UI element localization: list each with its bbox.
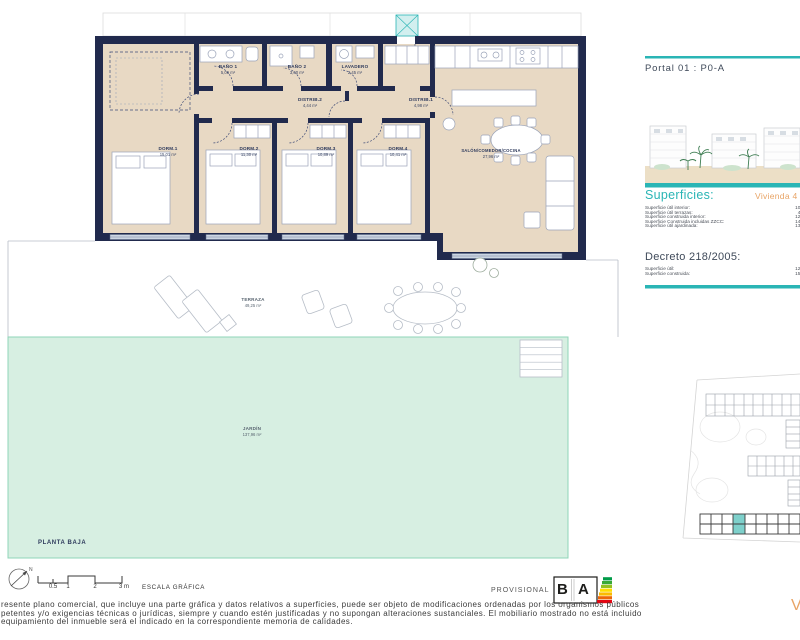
room-label-bano2: BAÑO 2 3,60 m² [288, 64, 307, 75]
vivienda-label: Vivienda 4 [755, 191, 798, 201]
disclaimer-line: equipamiento del inmueble será el indica… [1, 617, 353, 626]
room-label-dorm3: DORM.3 10,89 m² [316, 146, 335, 157]
north-compass-icon [9, 569, 29, 589]
decreto-row: Superficie construida: 156 [645, 272, 800, 277]
floor-level-label: PLANTA BAJA [38, 540, 86, 546]
shaft-icon [396, 15, 418, 36]
upper-floor-outline [103, 13, 581, 36]
room-label-dorm4: DORM.4 10,41 m² [388, 146, 407, 157]
room-label-dorm2: DORM.2 11,30 m² [239, 146, 258, 157]
superficie-row: Superficie útil ajardinada: 137 [645, 224, 800, 229]
floorplan-brochure-page: BAÑO 1 5,06 m² BAÑO 2 3,60 m² LAVADERO 2… [0, 0, 800, 640]
garden [8, 337, 568, 558]
room-label-terraza: TERRAZA 49,25 m² [241, 297, 264, 308]
scale-bar [38, 576, 122, 583]
energy-letter-b: B [557, 578, 568, 602]
room-label-lavadero: LAVADERO 2,45 m² [342, 64, 369, 75]
room-label-distrib2: DISTRIB.2 4,44 m² [298, 97, 322, 108]
site-plan [683, 374, 800, 542]
room-label-jardin: JARDÍN 137,96 m² [243, 426, 262, 437]
scale-tick: 1 [66, 584, 69, 590]
scale-caption: ESCALA GRÁFICA [142, 584, 205, 591]
room-label-dorm1: DORM.1 15,01 m² [158, 146, 177, 157]
plan-graphics [0, 0, 800, 640]
room-label-salon: SALÓN/COMEDOR/COCINA 27,96 m² [461, 148, 520, 159]
room-label-distrib1: DISTRIB.1 4,98 m² [409, 97, 433, 108]
decreto-heading: Decreto 218/2005: [645, 251, 741, 263]
scale-tick: 3 m [119, 584, 129, 590]
room-label-bano1: BAÑO 1 5,06 m² [219, 64, 238, 75]
provisional-label: PROVISIONAL [491, 587, 549, 594]
building-render-image [645, 126, 800, 183]
superficies-heading: Superficies: [645, 188, 714, 202]
energy-letter-a: A [578, 578, 589, 602]
north-label: N [29, 567, 33, 573]
scale-tick: 0.5 [49, 584, 57, 590]
portal-title: Portal 01 : P0-A [645, 63, 725, 74]
scale-tick: 2 [93, 584, 96, 590]
vivienda-partial-text: V [791, 597, 800, 615]
